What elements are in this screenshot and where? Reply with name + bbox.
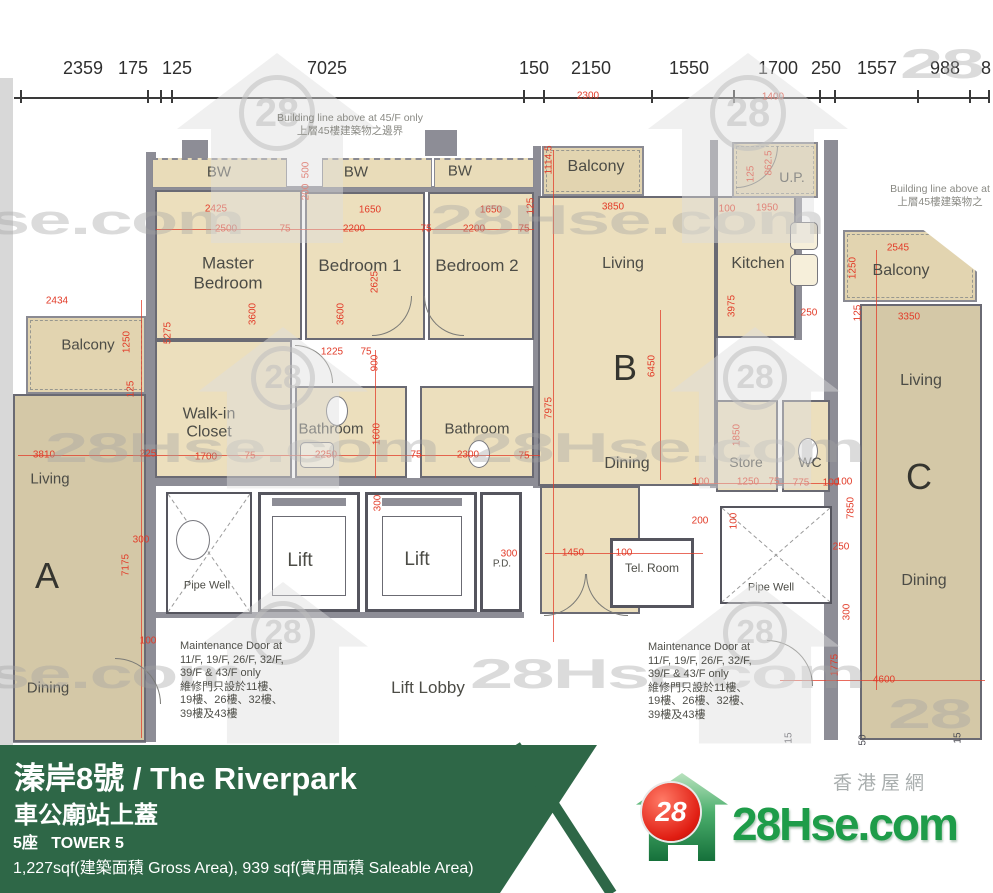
room-label: Kitchen xyxy=(731,255,784,273)
building-line-note-en: Building line above at 45/F only xyxy=(277,112,423,125)
maintenance-note: Maintenance Door at 11/F, 19/F, 26/F, 32… xyxy=(648,641,752,722)
ruler-tick xyxy=(969,90,971,103)
watermark-28-badge: 28 xyxy=(710,75,786,151)
ruler-number: 1557 xyxy=(857,58,897,79)
dimension-label: 6450 xyxy=(647,355,658,377)
room-label: Dining xyxy=(901,572,946,590)
room-pipe-well-1 xyxy=(166,492,252,614)
room-label: Lift Lobby xyxy=(391,678,465,698)
room-pipe-well-fixture xyxy=(176,520,210,560)
watermark-28-badge: 28 xyxy=(723,346,787,410)
ruler-tick xyxy=(819,90,821,103)
dimension-label: 250 xyxy=(801,308,818,319)
ruler-number: 7025 xyxy=(307,58,347,79)
dimension-label: 300 xyxy=(133,535,150,546)
room-label: Lift xyxy=(404,549,429,571)
room-kitchen-appliance xyxy=(790,254,818,286)
room-label: Living xyxy=(30,470,69,487)
unit-letter: C xyxy=(906,456,932,498)
unit-letter: A xyxy=(35,555,59,597)
dimension-label: 7850 xyxy=(846,497,857,519)
ruler-tick xyxy=(917,90,919,103)
dimension-label: 100 xyxy=(729,513,740,530)
floorplan-page: 2359175125702515021501550170025015579888… xyxy=(0,0,993,893)
dimension-label: 100 xyxy=(616,548,633,559)
dimension-label: 100 xyxy=(140,636,157,647)
ruler-number: 175 xyxy=(118,58,148,79)
maintenance-note: Maintenance Door at 11/F, 19/F, 26/F, 32… xyxy=(180,640,284,721)
dimension-label: 200 xyxy=(692,516,709,527)
logo-site-name: 28Hse.com xyxy=(732,797,957,851)
dimension-label: 5275 xyxy=(163,322,174,344)
dimension-label: 1250 xyxy=(122,331,133,353)
room-lift-door-slab xyxy=(272,498,346,506)
ruler-tick xyxy=(834,90,836,103)
estate-title: 溱岸8號 / The Riverpark xyxy=(14,753,357,798)
room-label: BW xyxy=(448,162,472,179)
ruler-number: 125 xyxy=(162,58,192,79)
room-label: Pipe Well xyxy=(184,580,230,593)
ruler-tick xyxy=(147,90,149,103)
watermark-28-badge: 28 xyxy=(251,346,315,410)
room-label: BW xyxy=(344,163,368,180)
dimension-label: 100 xyxy=(823,478,840,489)
room-label: Living xyxy=(602,255,644,273)
dimension-label: 125 xyxy=(126,381,137,398)
wall-segment xyxy=(182,140,208,158)
wall-segment xyxy=(425,130,457,156)
dimension-label: 1650 xyxy=(359,205,381,216)
dimension-label: 7975 xyxy=(544,397,555,419)
room-label: Bedroom 1 xyxy=(318,256,401,276)
ruler-tick xyxy=(20,90,22,103)
dimension-label: 1225 xyxy=(321,347,343,358)
dimension-label: 3975 xyxy=(727,295,738,317)
ruler-number: 150 xyxy=(519,58,549,79)
building-line-note-en: Building line above at xyxy=(890,183,990,196)
dimension-label: 2300 xyxy=(577,91,599,102)
ruler-tick xyxy=(171,90,173,103)
dimension-label: 250 xyxy=(833,542,850,553)
room-label: Master Bedroom xyxy=(194,253,263,292)
footer-banner: 溱岸8號 / The Riverpark 車公廟站上蓋 5座 TOWER 5 1… xyxy=(0,745,993,893)
dimension-label: 1114.5 xyxy=(544,145,555,174)
dimension-label: 2200 xyxy=(343,224,365,235)
dimension-label: 3350 xyxy=(898,312,920,323)
ruler-tick xyxy=(523,90,525,103)
ruler-number: 1550 xyxy=(669,58,709,79)
page-edge-strip xyxy=(0,78,13,745)
watermark-text: 28 xyxy=(888,690,971,738)
building-line-note: Building line above at 上層45樓建築物之 xyxy=(890,183,990,209)
room-label: Tel. Room xyxy=(625,562,679,576)
dimension-label: 3600 xyxy=(336,303,347,325)
building-line-note-zh: 上層45樓建築物之 xyxy=(890,196,990,209)
ruler-tick xyxy=(651,90,653,103)
room-label: Lift xyxy=(287,550,312,572)
logo-badge-28: 28 xyxy=(642,783,700,841)
dimension-label: 1450 xyxy=(562,548,584,559)
ruler-tick xyxy=(543,90,545,103)
dimension-label: 300 xyxy=(501,549,518,560)
room-label: Balcony xyxy=(873,262,930,280)
dimension-label: 2434 xyxy=(46,296,68,307)
room-label: Living xyxy=(900,372,942,390)
dimension-label: 3600 xyxy=(248,303,259,325)
dimension-label: 2545 xyxy=(887,243,909,254)
ruler-tick xyxy=(988,90,990,103)
room-lift-door-slab xyxy=(382,498,462,506)
house-door-icon xyxy=(668,845,698,861)
dimension-label: 50 xyxy=(858,734,869,745)
building-line-note-zh: 上層45樓建築物之邊界 xyxy=(277,125,423,138)
dimension-label: 900 xyxy=(370,355,381,372)
floor-plan: 2359175125702515021501550170025015579888… xyxy=(0,0,993,745)
watermark-text: 28Hse.com xyxy=(0,196,244,244)
room-label: Bedroom 2 xyxy=(435,256,518,276)
dimension-label: 125 xyxy=(853,305,864,322)
room-label: Balcony xyxy=(61,336,114,353)
watermark-text: 28 xyxy=(900,40,983,88)
dimension-label: 1250 xyxy=(848,257,859,279)
tower-line: 5座 TOWER 5 xyxy=(13,829,124,853)
dimension-label: 300 xyxy=(373,495,384,512)
ruler-number: 2150 xyxy=(571,58,611,79)
estate-subtitle: 車公廟站上蓋 xyxy=(14,795,158,830)
dimension-label: 2625 xyxy=(370,271,381,293)
dimension-label: 300 xyxy=(842,604,853,621)
dimension-line xyxy=(876,250,877,690)
ruler-number: 2359 xyxy=(63,58,103,79)
area-line: 1,227sqf(建築面積 Gross Area), 939 sqf(實用面積 … xyxy=(13,854,474,878)
logo-tagline: 香港屋網 xyxy=(833,768,929,795)
unit-letter: B xyxy=(613,347,637,389)
28hse-logo[interactable]: 28 香港屋網 28Hse.com xyxy=(630,765,960,875)
room-label: Balcony xyxy=(568,158,625,176)
ruler-number: 250 xyxy=(811,58,841,79)
dimension-label: 4600 xyxy=(873,675,895,686)
room-label: P.D. xyxy=(493,558,511,570)
building-line-note: Building line above at 45/F only 上層45樓建築… xyxy=(277,112,423,138)
dimension-label: 7175 xyxy=(121,554,132,576)
ruler-tick xyxy=(160,90,162,103)
